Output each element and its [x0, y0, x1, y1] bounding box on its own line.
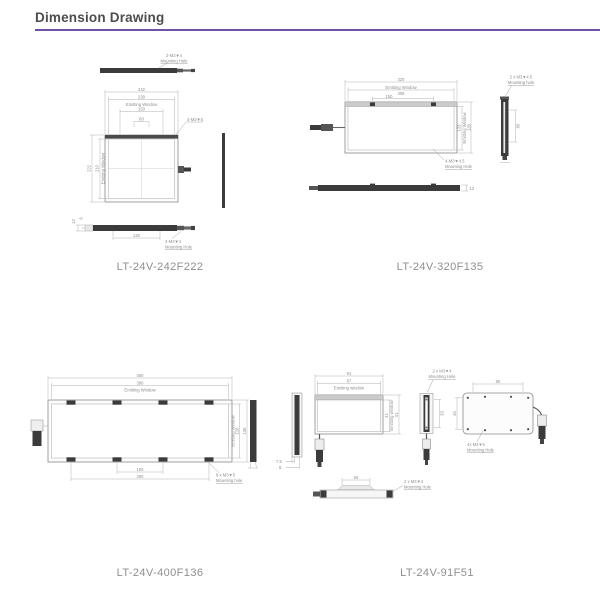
dim-91-bottom-span: 50: [354, 475, 359, 480]
ann-242-top-line1: 2-M3▼4: [166, 53, 183, 58]
dim-91-back-width: 80: [496, 379, 501, 384]
dim-320-window-label: Emitting Window: [385, 85, 417, 90]
left-connector: [31, 420, 48, 446]
dim-320-outer-width: 320: [398, 77, 406, 82]
dim-400-window-label: Emitting Window: [124, 387, 156, 392]
corner-annotation: 4-M3▼5: [176, 117, 204, 135]
left-side-view: [286, 393, 302, 469]
drawing-400f136: 400 390 Emitting Window Emitting Window …: [28, 360, 265, 505]
ann-91-bot-line1: 2 x M3▼4: [404, 479, 424, 484]
ann-400-line2: Mounting hole: [216, 478, 243, 483]
dim-242-thickness2: 9: [79, 217, 84, 220]
dim-400-outer-height: 136: [242, 427, 247, 435]
ann-242-top-line2: Mounting Hole: [160, 58, 188, 63]
dim-400-bottom-span1: 100: [137, 467, 145, 472]
front-view: [345, 102, 457, 153]
ann-242-bottom-line2: Mounting Hole: [165, 245, 193, 250]
side-view: [500, 97, 510, 163]
width-dimension-lines: [315, 374, 383, 394]
connector-stub: [178, 166, 184, 173]
dim-400-outer-width: 400: [137, 373, 145, 378]
dim-400-bottom-span2: 300: [137, 474, 145, 479]
dim-91-mid-span: 33: [439, 411, 444, 416]
dim-242-hole-span: 150: [138, 106, 146, 111]
ann-320-side-line1: 2 x M3▼4.5: [510, 75, 533, 80]
model-label-400: LT-24V-400F136: [55, 567, 265, 579]
bottom-annotation: 8 x M3▼5 Mounting hole: [209, 463, 243, 483]
dim-320-window-width: 308: [398, 91, 406, 96]
section-divider: [35, 29, 600, 31]
bottom-side-view: [85, 225, 195, 231]
model-label-242: LT-24V-242F222: [55, 261, 265, 273]
side-annotation: 2 x M3▼4.5 Mounting hole: [506, 75, 535, 97]
dim-91-thickness1: 7.5: [276, 459, 282, 464]
ann-242-bottom-line1: 2-M3▼4: [165, 239, 182, 244]
drawing-242f222: 2-M3▼4 Mounting Hole 242 230 Emitting Wi…: [55, 50, 225, 265]
ann-242-corner: 4-M3▼5: [187, 117, 204, 122]
dim-242-thickness1: 12: [71, 219, 76, 224]
front-view: [315, 395, 383, 467]
dim-91-outer-height: 51: [394, 412, 399, 417]
ann-91-back-line1: 4x M3▼5: [467, 442, 486, 447]
thickness-dimension-lines: [76, 225, 85, 231]
dim-91-window-label: Emitting window: [334, 385, 365, 390]
front-view: [48, 400, 232, 462]
ann-91-back-line2: Mounting Hole: [467, 448, 495, 453]
ann-400-line1: 8 x M3▼5: [216, 473, 236, 478]
ann-91-mid-line2: Mounting Hole: [428, 374, 456, 379]
dim-91-window-width: 87: [347, 378, 352, 383]
right-side-view: [222, 133, 225, 208]
dim-320-outer-height: 135: [466, 123, 471, 131]
ann-91-mid-line1: 2 x M3▼4: [432, 369, 452, 374]
ann-320-side-line2: Mounting hole: [508, 80, 535, 85]
back-view: [463, 393, 533, 434]
dim-320-thickness: 12: [470, 186, 475, 191]
middle-side-view: [420, 394, 433, 466]
back-cable: [533, 407, 547, 444]
drawing-320f135: 320 Emitting Window 308 150 123 Emitting…: [305, 70, 555, 205]
dim-242-window-width: 230: [138, 94, 146, 99]
dim-242-outer-width: 242: [138, 87, 146, 92]
front-view: [105, 135, 191, 202]
ann-320-front-line2: Mounting Hole: [445, 164, 473, 169]
section-title: Dimension Drawing: [35, 10, 164, 25]
left-connector: [310, 124, 345, 131]
dim-242-bottom-span: 120: [133, 233, 141, 238]
dim-320-hole-span: 150: [386, 94, 394, 99]
dim-400-window-width: 390: [137, 380, 145, 385]
bottom-view: [313, 486, 393, 499]
top-annotation: 2-M3▼4 Mounting Hole: [159, 53, 188, 68]
top-side-view: [100, 68, 195, 73]
right-side-view: [248, 400, 258, 468]
dim-400-window-height: 126: [234, 427, 239, 435]
drawing-91f51: 7.5 8 91 87 Emitting window 41 Emitting …: [270, 362, 560, 512]
model-label-320: LT-24V-320F135: [335, 261, 545, 273]
bottom-annotation: 2-M3▼4 Mounting Hole: [165, 232, 193, 250]
bottom-annotation: 2 x M3▼4 Mounting Hole: [393, 479, 432, 492]
dim-320-side-span: 80: [516, 123, 521, 128]
dim-210-window-label: Emitting Window: [101, 152, 106, 184]
dim-91-outer-width: 91: [347, 371, 352, 376]
dim-91-back-height: 46: [452, 411, 457, 416]
ann-320-front-line1: 4-M3▼4.5: [445, 159, 465, 164]
dim-242-hole-span2: 60: [139, 116, 144, 121]
dim-222-outer-height: 222: [87, 164, 92, 172]
thickness-dimension: [461, 185, 468, 191]
ann-91-bot-line2: Mounting Hole: [404, 485, 432, 490]
dim-320-window-height: 123: [457, 124, 462, 132]
dim-91-thickness2: 8: [279, 465, 282, 470]
bottom-side-view: [309, 184, 460, 191]
middle-annotation: 2 x M3▼4 Mounting Hole: [428, 369, 457, 393]
model-label-91: LT-24V-91F51: [332, 567, 542, 579]
dim-210-window-height: 210: [95, 164, 100, 172]
